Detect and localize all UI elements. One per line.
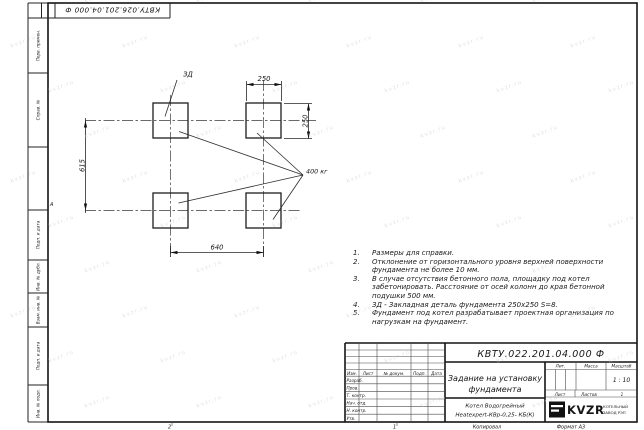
note-number: 5. <box>353 309 372 318</box>
margin-label-inv-podl: Инв. № подл. <box>36 389 41 418</box>
note-number: 4. <box>353 301 372 310</box>
kvzr-logo-icon <box>549 402 565 418</box>
dimension-250-right: 250 <box>284 104 312 139</box>
dim-bottom-value: 640 <box>211 244 224 252</box>
note-text: нагрузкам на фундамент. <box>372 318 631 327</box>
note-number <box>353 266 372 275</box>
note-text: Отклонение от горизонтального уровня вер… <box>372 258 631 267</box>
copied-label: Копировал <box>473 425 502 430</box>
col-data: Дата <box>430 371 442 376</box>
mass-label: Масса <box>584 364 598 369</box>
dimension-615-left: 615 <box>79 118 88 213</box>
note-line: подушки 500 мм. <box>353 292 631 301</box>
note-number <box>353 318 372 327</box>
margin-label-sprav: Справ. № <box>36 99 41 120</box>
notes-block: 1.Размеры для справки. 2.Отклонение от г… <box>353 249 631 326</box>
drawing-title-line1: Задание на установку <box>448 374 542 383</box>
note-number: 2. <box>353 258 372 267</box>
note-number: 3. <box>353 275 372 284</box>
format-label: Формат А3 <box>557 425 585 430</box>
row-tkontr: Т. контр. <box>347 393 366 398</box>
margin-label-perv: Перв. примен. <box>36 30 41 61</box>
margin-label-podp2: Подп. и дата <box>36 341 41 370</box>
lit-label: Лит. <box>555 364 566 369</box>
row-utv: Утв. <box>347 416 356 421</box>
sheets-value: 1 <box>621 392 624 397</box>
note-line: 5.Фундамент под котел разрабатывает прое… <box>353 309 631 318</box>
scale-label: Масштаб <box>612 364 632 369</box>
dimension-250-top: 250 <box>247 75 282 101</box>
brand-sub1: КОТЕЛЬНЫЙ <box>603 404 628 409</box>
product-line2: Heatexpert-КВр-0,25- КБ(К) <box>455 413 534 419</box>
col-podp: Подп. <box>413 371 426 376</box>
top-doc-number: КВТУ.026.201.04.000 Ф <box>65 6 160 15</box>
company-block: KVZR КОТЕЛЬНЫЙ ЗАВОД РЭП <box>549 402 628 418</box>
weight-label: 400 кг <box>306 168 328 176</box>
margin-label-podp1: Подп. и дата <box>36 220 41 249</box>
note-line: 2.Отклонение от горизонтального уровня в… <box>353 258 631 267</box>
note-line: 3.В случае отсутствия бетонного пола, пл… <box>353 275 631 284</box>
note-line: нагрузкам на фундамент. <box>353 318 631 327</box>
col-doc: № докум. <box>383 371 405 376</box>
margin-label-vzam: Взам. инв. № <box>36 295 41 324</box>
note-number <box>353 292 372 301</box>
col-list: Лист <box>362 371 374 376</box>
note-line: фундамента не более 10 мм. <box>353 266 631 275</box>
note-text: ЗД - Закладная деталь фундамента 250х250… <box>372 301 631 310</box>
dim-top-value: 250 <box>258 75 271 83</box>
note-line: 1.Размеры для справки. <box>353 249 631 258</box>
doc-number: КВТУ.022.201.04.000 Ф <box>477 349 604 360</box>
note-line: забетонировать. Расстояние от осей колон… <box>353 283 631 292</box>
linework-svg: КВТУ.026.201.04.000 Ф Перв. примен. Спра… <box>0 0 644 430</box>
row-nkontr: Н. контр. <box>347 408 367 413</box>
dim-right-value: 250 <box>302 115 310 128</box>
margin-labels: Перв. примен. Справ. № Подп. и дата Инв.… <box>36 30 41 418</box>
col-izm: Изм. <box>347 371 357 376</box>
zone-number-2: 2 <box>168 425 171 430</box>
note-text: фундамента не более 10 мм. <box>372 266 631 275</box>
row-nachotd: Нач. отд. <box>347 401 367 406</box>
dim-left-value: 615 <box>79 159 87 172</box>
drawing-sheet: КВТУ.026.201.04.000 Ф Перв. примен. Спра… <box>0 0 644 430</box>
row-prov: Пров. <box>347 385 359 390</box>
product-line1: Котел Водогрейный <box>465 404 525 410</box>
scale-value: 1 : 10 <box>613 377 630 384</box>
note-text: В случае отсутствия бетонного пола, площ… <box>372 275 631 284</box>
embed-detail-label: ЗД <box>183 71 193 79</box>
note-text: подушки 500 мм. <box>372 292 631 301</box>
note-text: Размеры для справки. <box>372 249 631 258</box>
embed-detail-callout: ЗД <box>165 71 193 117</box>
zone-letter: А <box>49 202 54 208</box>
margin-label-inv-dubl: Инв. № дубл. <box>36 262 41 291</box>
note-number: 1. <box>353 249 372 258</box>
zone-number-1: 1 <box>393 425 396 430</box>
sheets-label: Листов <box>580 392 597 397</box>
foundation-plan: 250 250 615 640 <box>79 71 329 258</box>
brand-name: KVZR <box>567 403 604 417</box>
row-razrab: Разраб. <box>347 378 363 383</box>
brand-sub2: ЗАВОД РЭП <box>603 410 626 415</box>
drawing-title-line2: фундамента <box>469 385 522 394</box>
note-text: забетонировать. Расстояние от осей колон… <box>372 283 631 292</box>
sheet-label: Лист <box>554 392 566 397</box>
note-line: 4.ЗД - Закладная деталь фундамента 250х2… <box>353 301 631 310</box>
weight-callout: 400 кг <box>179 132 329 220</box>
note-text: Фундамент под котел разрабатывает проект… <box>372 309 631 318</box>
note-number <box>353 283 372 292</box>
foundation-plates <box>153 103 281 228</box>
dimension-640-bottom: 640 <box>171 244 264 258</box>
